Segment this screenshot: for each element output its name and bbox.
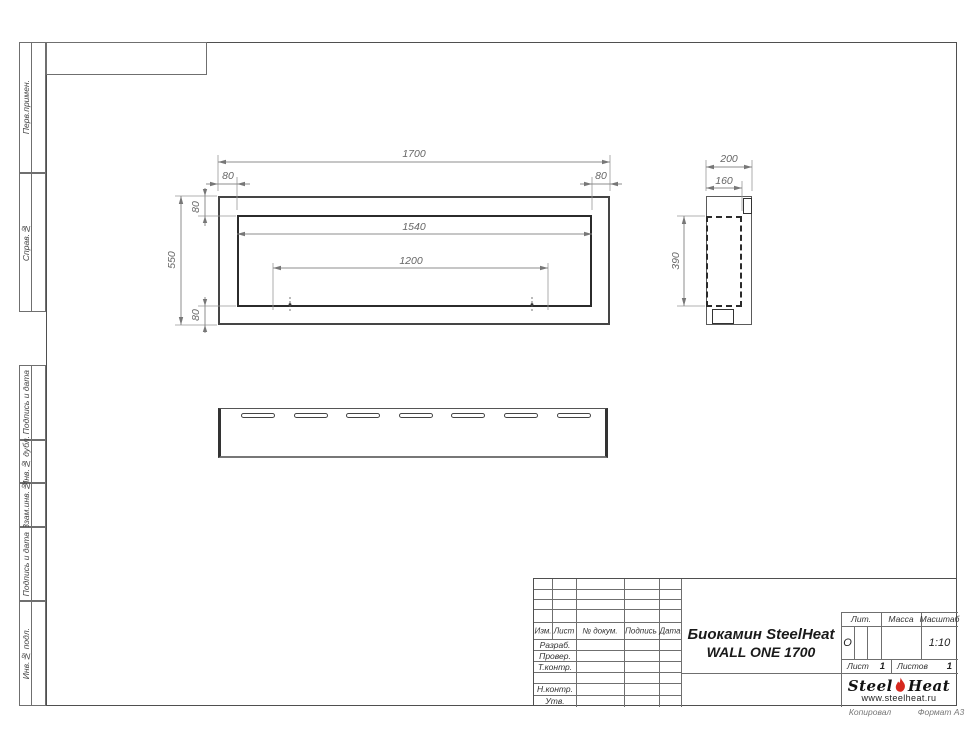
list-label: Лист [847,661,869,671]
side-section: Инв.№ подл. [19,601,46,706]
side-section-strip: Подпись и дата [20,366,32,439]
col-sign: Подпись [625,626,657,635]
listov-label: Листов [897,661,928,671]
side-label: Подпись и дата [21,370,31,434]
copied-label: Копировал [849,707,891,717]
side-view-burner [712,309,734,324]
side-section-strip: Подпись и дата [20,528,32,600]
listov-value: 1 [947,661,952,672]
sheets-cell: Листов 1 [891,659,958,673]
row-tkontr: Т.контр. [538,662,572,672]
drawing-sheet: Перв.примен. Справ.№ Подпись и дата Инв.… [0,0,970,749]
vent-slot [451,413,485,418]
dim-top-frame: 80 [190,201,202,213]
row-utv: Утв. [545,696,564,706]
side-section-strip: Справ.№ [20,174,32,311]
logo-url: www.steelheat.ru [862,693,937,703]
side-label: Справ.№ [21,224,31,261]
logo-word-heat: Heat [908,679,950,693]
top-stamp-box [46,42,207,75]
side-label: Инв.№ подл. [21,628,31,679]
logo: Steel Heat www.steelheat.ru [841,673,957,706]
title-line-2: WALL ONE 1700 [707,644,816,660]
vent-slot [557,413,591,418]
side-label: Подпись и дата [21,532,31,596]
document-title: Биокамин SteelHeat WALL ONE 1700 [681,579,841,673]
sheet-cell: Лист 1 [841,659,891,673]
title-block: Изм. Лист № докум. Подпись Дата Разраб. … [533,578,957,706]
row-prover: Провер. [539,651,571,661]
side-section-strip: Инв.№ дубл. [20,441,32,482]
dim-left-frame: 80 [222,170,234,182]
mass-label: Масса [888,614,913,624]
lit-label: Лит. [851,614,871,624]
bottom-view [218,408,608,458]
dim-inner-depth: 160 [715,175,733,187]
dim-total-height: 550 [166,251,178,269]
row-razrab: Разраб. [540,640,571,650]
side-label: Взам.инв.№ [21,481,31,530]
col-list: Лист [554,626,575,635]
side-view-bracket [743,198,752,214]
side-section: Взам.инв.№ [19,483,46,527]
side-section-strip: Перв.примен. [20,43,32,172]
side-label: Инв.№ дубл. [21,436,31,487]
row-nkontr: Н.контр. [537,684,573,694]
side-section: Инв.№ дубл. [19,440,46,483]
col-izm: Изм. [534,626,551,635]
side-section: Справ.№ [19,173,46,312]
side-section: Перв.примен. [19,42,46,173]
vent-slot [241,413,275,418]
dim-burner-width: 1200 [399,255,422,267]
dim-opening-width: 1540 [402,221,425,233]
list-value: 1 [880,661,885,672]
dim-depth: 200 [720,153,738,165]
dim-bottom-frame: 80 [190,309,202,321]
logo-word-steel: Steel [848,679,893,693]
dim-right-frame: 80 [595,170,607,182]
side-section: Подпись и дата [19,365,46,440]
side-view-hidden-box [706,216,742,307]
dim-total-width: 1700 [402,148,425,160]
col-date: Дата [659,626,680,635]
dim-inner-height: 390 [670,252,682,270]
side-section-strip: Инв.№ подл. [20,602,32,705]
lit-value: О [843,637,852,649]
vent-slot [399,413,433,418]
side-label: Перв.примен. [21,80,31,134]
col-doc: № докум. [582,626,617,635]
title-line-1: Биокамин SteelHeat [688,626,835,643]
vent-slot [504,413,538,418]
format-label: Формат А3 [918,707,965,717]
vent-slot [294,413,328,418]
flame-icon [894,677,907,693]
vent-slot [346,413,380,418]
side-section-strip: Взам.инв.№ [20,484,32,526]
side-section: Подпись и дата [19,527,46,601]
scale-value: 1:10 [929,637,950,649]
scale-label: Масштаб [920,614,960,624]
